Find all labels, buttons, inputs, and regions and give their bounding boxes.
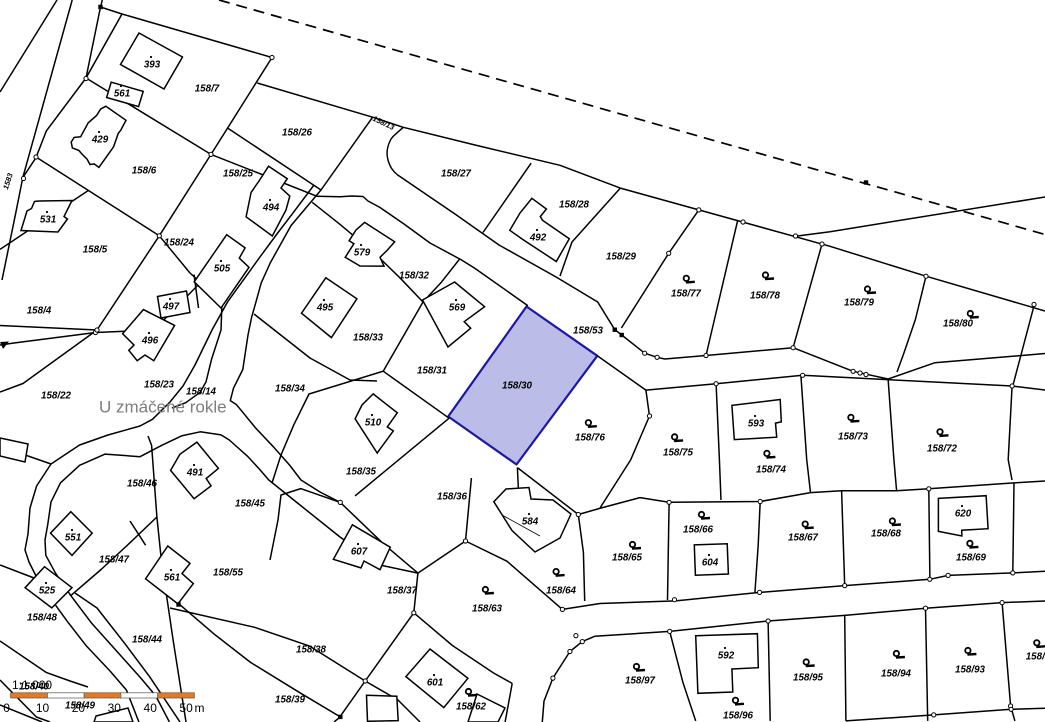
svg-text:158/22: 158/22	[41, 391, 72, 402]
svg-text:158/33: 158/33	[353, 333, 384, 344]
svg-text:158/29: 158/29	[606, 252, 637, 263]
svg-text:158/95: 158/95	[793, 673, 824, 684]
svg-text:158/34: 158/34	[275, 384, 306, 395]
svg-text:505: 505	[214, 264, 231, 275]
svg-text:551: 551	[65, 533, 81, 544]
svg-text:158/64: 158/64	[546, 586, 577, 597]
svg-text:158/96: 158/96	[723, 711, 754, 722]
svg-text:604: 604	[702, 558, 719, 569]
svg-text:20: 20	[72, 701, 86, 715]
svg-text:158/63: 158/63	[472, 604, 503, 615]
svg-text:158/23: 158/23	[144, 380, 175, 391]
svg-text:158/35: 158/35	[346, 467, 377, 478]
svg-text:158/24: 158/24	[164, 238, 195, 249]
svg-text:158/55: 158/55	[213, 568, 244, 579]
svg-text:158/26: 158/26	[282, 128, 313, 139]
svg-text:158/62: 158/62	[456, 702, 487, 713]
svg-text:158/27: 158/27	[441, 169, 472, 180]
svg-text:158/36: 158/36	[437, 492, 468, 503]
svg-text:561: 561	[114, 89, 130, 100]
svg-text:158/69: 158/69	[956, 553, 987, 564]
svg-text:158/47: 158/47	[99, 555, 130, 566]
svg-text:50: 50	[179, 701, 193, 715]
svg-text:579: 579	[354, 248, 371, 259]
svg-text:40: 40	[144, 701, 158, 715]
svg-text:607: 607	[351, 547, 368, 558]
svg-text:158/48: 158/48	[27, 613, 58, 624]
svg-text:10: 10	[36, 701, 50, 715]
svg-text:496: 496	[141, 336, 159, 347]
svg-text:158/94: 158/94	[881, 669, 912, 680]
svg-text:158/76: 158/76	[575, 433, 606, 444]
svg-text:620: 620	[955, 509, 972, 520]
svg-text:158/14: 158/14	[186, 387, 217, 398]
svg-text:393: 393	[144, 60, 161, 71]
svg-text:569: 569	[449, 303, 466, 314]
svg-text:492: 492	[529, 233, 547, 244]
svg-text:495: 495	[316, 303, 334, 314]
svg-text:158/80: 158/80	[943, 319, 974, 330]
svg-text:158/45: 158/45	[235, 499, 266, 510]
svg-text:497: 497	[162, 302, 180, 313]
svg-text:494: 494	[262, 203, 280, 214]
svg-text:158/30: 158/30	[502, 381, 533, 392]
svg-text:158/97: 158/97	[625, 676, 656, 687]
svg-text:30: 30	[108, 701, 122, 715]
svg-text:531: 531	[40, 215, 56, 226]
svg-text:158/5: 158/5	[83, 245, 108, 256]
svg-text:158/7: 158/7	[195, 84, 220, 95]
svg-text:158/6: 158/6	[132, 166, 157, 177]
svg-text:158/31: 158/31	[417, 366, 447, 377]
svg-text:158/46: 158/46	[127, 479, 158, 490]
svg-text:158/79: 158/79	[844, 298, 875, 309]
svg-text:158/93: 158/93	[955, 665, 986, 676]
svg-text:1:1 000: 1:1 000	[12, 678, 52, 692]
svg-text:601: 601	[427, 678, 443, 689]
svg-text:491: 491	[186, 468, 203, 479]
svg-text:158/38: 158/38	[296, 645, 327, 656]
svg-text:158/25: 158/25	[223, 169, 254, 180]
svg-text:U zmáčené rokle: U zmáčené rokle	[99, 398, 227, 417]
svg-text:158/72: 158/72	[927, 444, 958, 455]
svg-text:158/75: 158/75	[663, 448, 694, 459]
svg-text:0: 0	[3, 701, 10, 715]
svg-text:158/74: 158/74	[756, 465, 787, 476]
svg-text:429: 429	[91, 135, 109, 146]
svg-text:158/53: 158/53	[573, 326, 604, 337]
svg-text:158/68: 158/68	[871, 529, 902, 540]
svg-text:158/65: 158/65	[612, 553, 643, 564]
svg-text:158/67: 158/67	[788, 533, 819, 544]
svg-text:m: m	[195, 701, 205, 715]
svg-text:158/4: 158/4	[27, 306, 52, 317]
svg-text:158/37: 158/37	[387, 586, 418, 597]
svg-text:158/44: 158/44	[132, 635, 163, 646]
svg-text:510: 510	[365, 418, 382, 429]
svg-text:584: 584	[522, 517, 539, 528]
svg-text:158/73: 158/73	[838, 432, 869, 443]
svg-text:592: 592	[718, 651, 735, 662]
svg-text:561: 561	[164, 573, 180, 584]
svg-text:158/66: 158/66	[683, 525, 714, 536]
svg-text:158/32: 158/32	[399, 271, 430, 282]
svg-text:593: 593	[748, 419, 765, 430]
svg-text:158/28: 158/28	[559, 200, 590, 211]
svg-text:158/78: 158/78	[750, 291, 781, 302]
svg-text:158/9: 158/9	[1026, 652, 1045, 663]
svg-text:158/77: 158/77	[671, 289, 702, 300]
svg-text:158/39: 158/39	[275, 695, 306, 706]
svg-text:525: 525	[39, 586, 56, 597]
